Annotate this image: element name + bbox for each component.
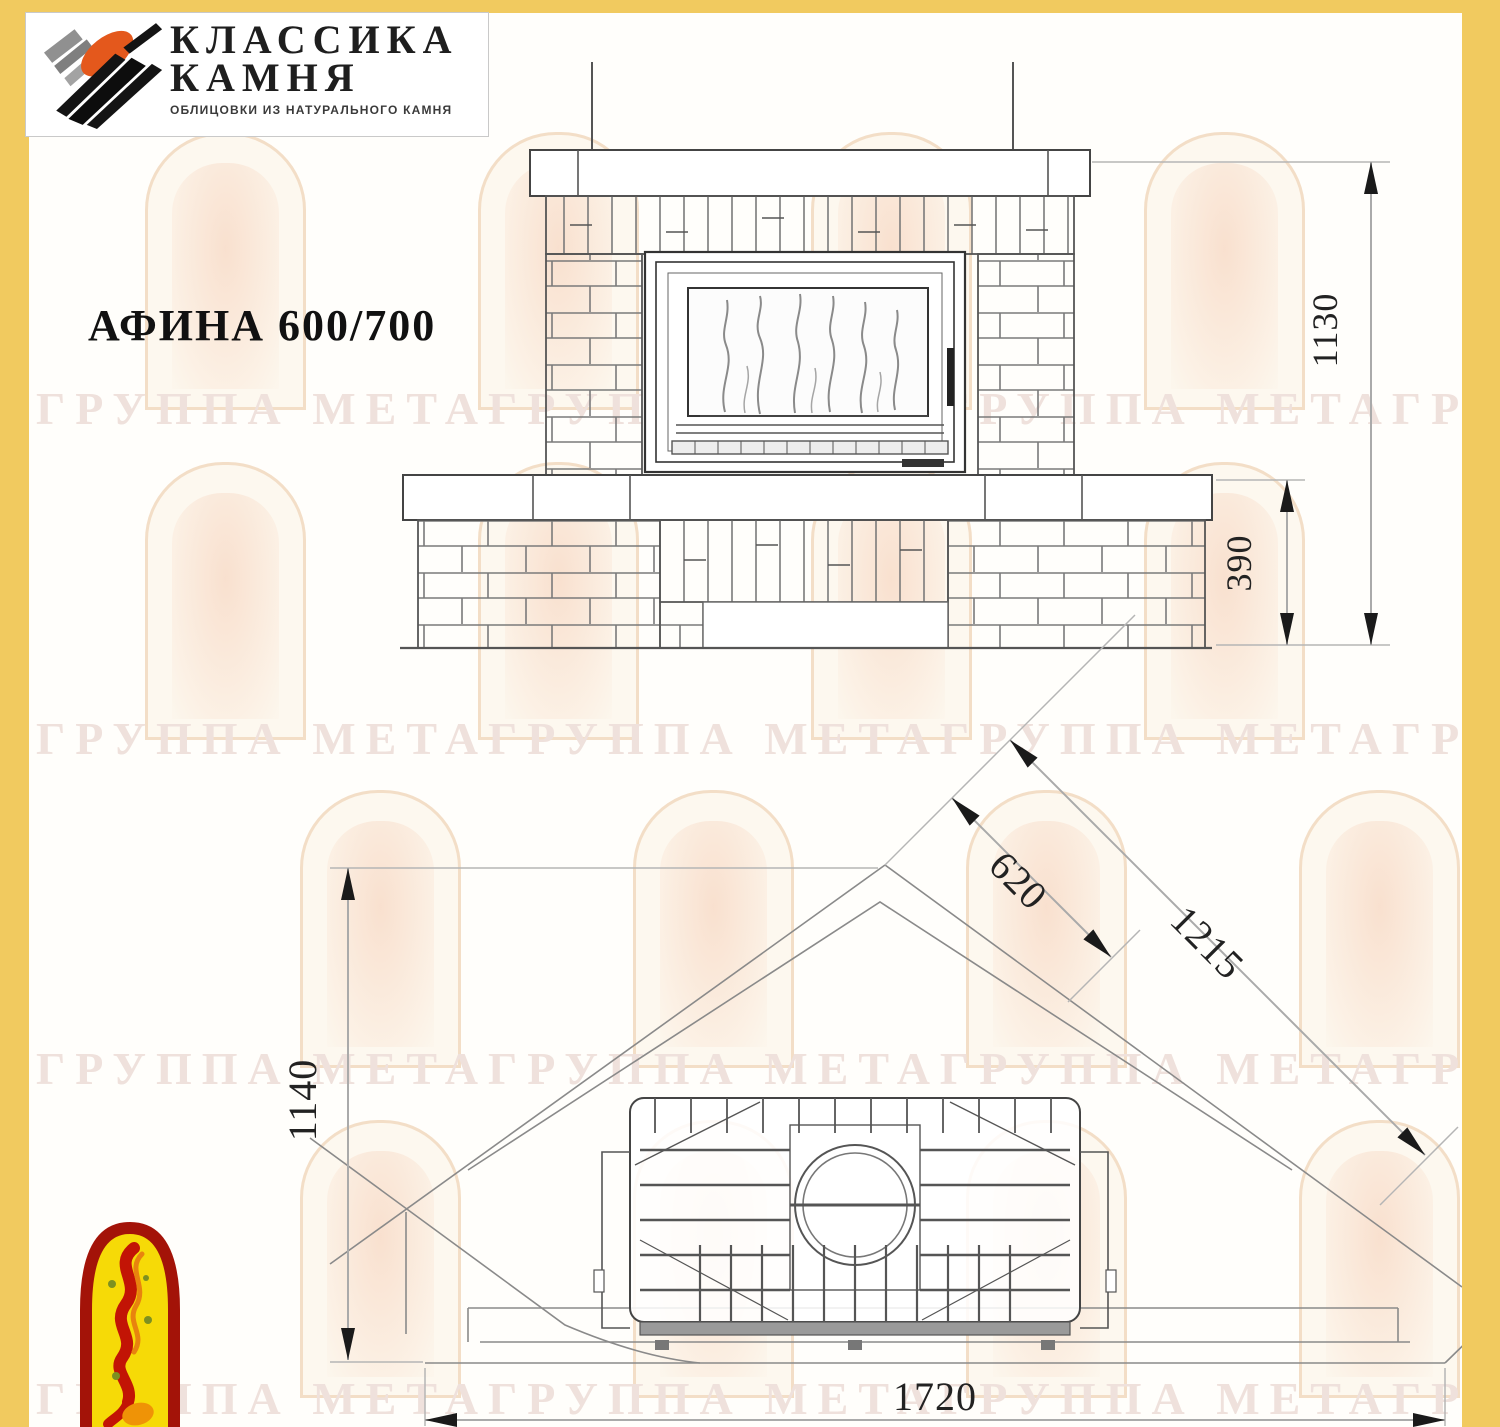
dimension-1720: 1720: [425, 1368, 1445, 1426]
mantel-shelf: [530, 150, 1090, 196]
page-border-left: [0, 0, 29, 1427]
brand-subtitle: ОБЛИЦОВКИ ИЗ НАТУРАЛЬНОГО КАМНЯ: [170, 104, 458, 116]
fireplace-technical-drawing: 1130 390: [0, 0, 1500, 1427]
dim-label-front-width: 1720: [893, 1374, 977, 1419]
brand-name-line2: КАМНЯ: [170, 59, 458, 97]
brand-logo-card: КЛАССИКА КАМНЯ ОБЛИЦОВКИ ИЗ НАТУРАЛЬНОГО…: [25, 12, 489, 137]
stone-column-left: [546, 254, 642, 478]
frieze-soldier-course: [546, 196, 1074, 254]
firebox-label-plate: [902, 459, 944, 467]
wood-niche: [703, 602, 948, 648]
insert-plan-view: [594, 1098, 1116, 1350]
dimension-620: 620: [885, 615, 1140, 1002]
front-elevation-view: 1130 390: [400, 62, 1390, 648]
dim-label-bench-height: 390: [1219, 535, 1259, 592]
dim-label-side-wall: 1215: [1162, 897, 1253, 988]
brand-logo-icon: [32, 17, 168, 129]
brand-name-line1: КЛАССИКА: [170, 21, 458, 59]
plan-view: 620 1215 1140 1720: [280, 615, 1500, 1426]
bench-top-slab: [403, 475, 1212, 520]
dim-label-firebox-width: 620: [980, 842, 1056, 918]
firebox-insert: [645, 252, 965, 472]
bench-base: [400, 475, 1212, 648]
footer-emblem: [78, 1218, 182, 1427]
page: ГРУППА МЕТАГРУППА МЕТАГРУППА МЕТАГРУППА …: [0, 0, 1500, 1427]
firebird-arch-icon: [78, 1218, 182, 1427]
page-border-right: [1462, 0, 1500, 1427]
dim-label-depth: 1140: [280, 1059, 325, 1142]
dim-label-total-height: 1130: [1305, 293, 1345, 368]
stone-column-right: [978, 254, 1074, 478]
bench-frieze: [660, 520, 948, 602]
firebox-handle: [947, 348, 954, 406]
model-title: АФИНА 600/700: [88, 300, 436, 351]
dimension-390: 390: [1216, 480, 1305, 645]
chimney-lines: [592, 62, 1013, 150]
